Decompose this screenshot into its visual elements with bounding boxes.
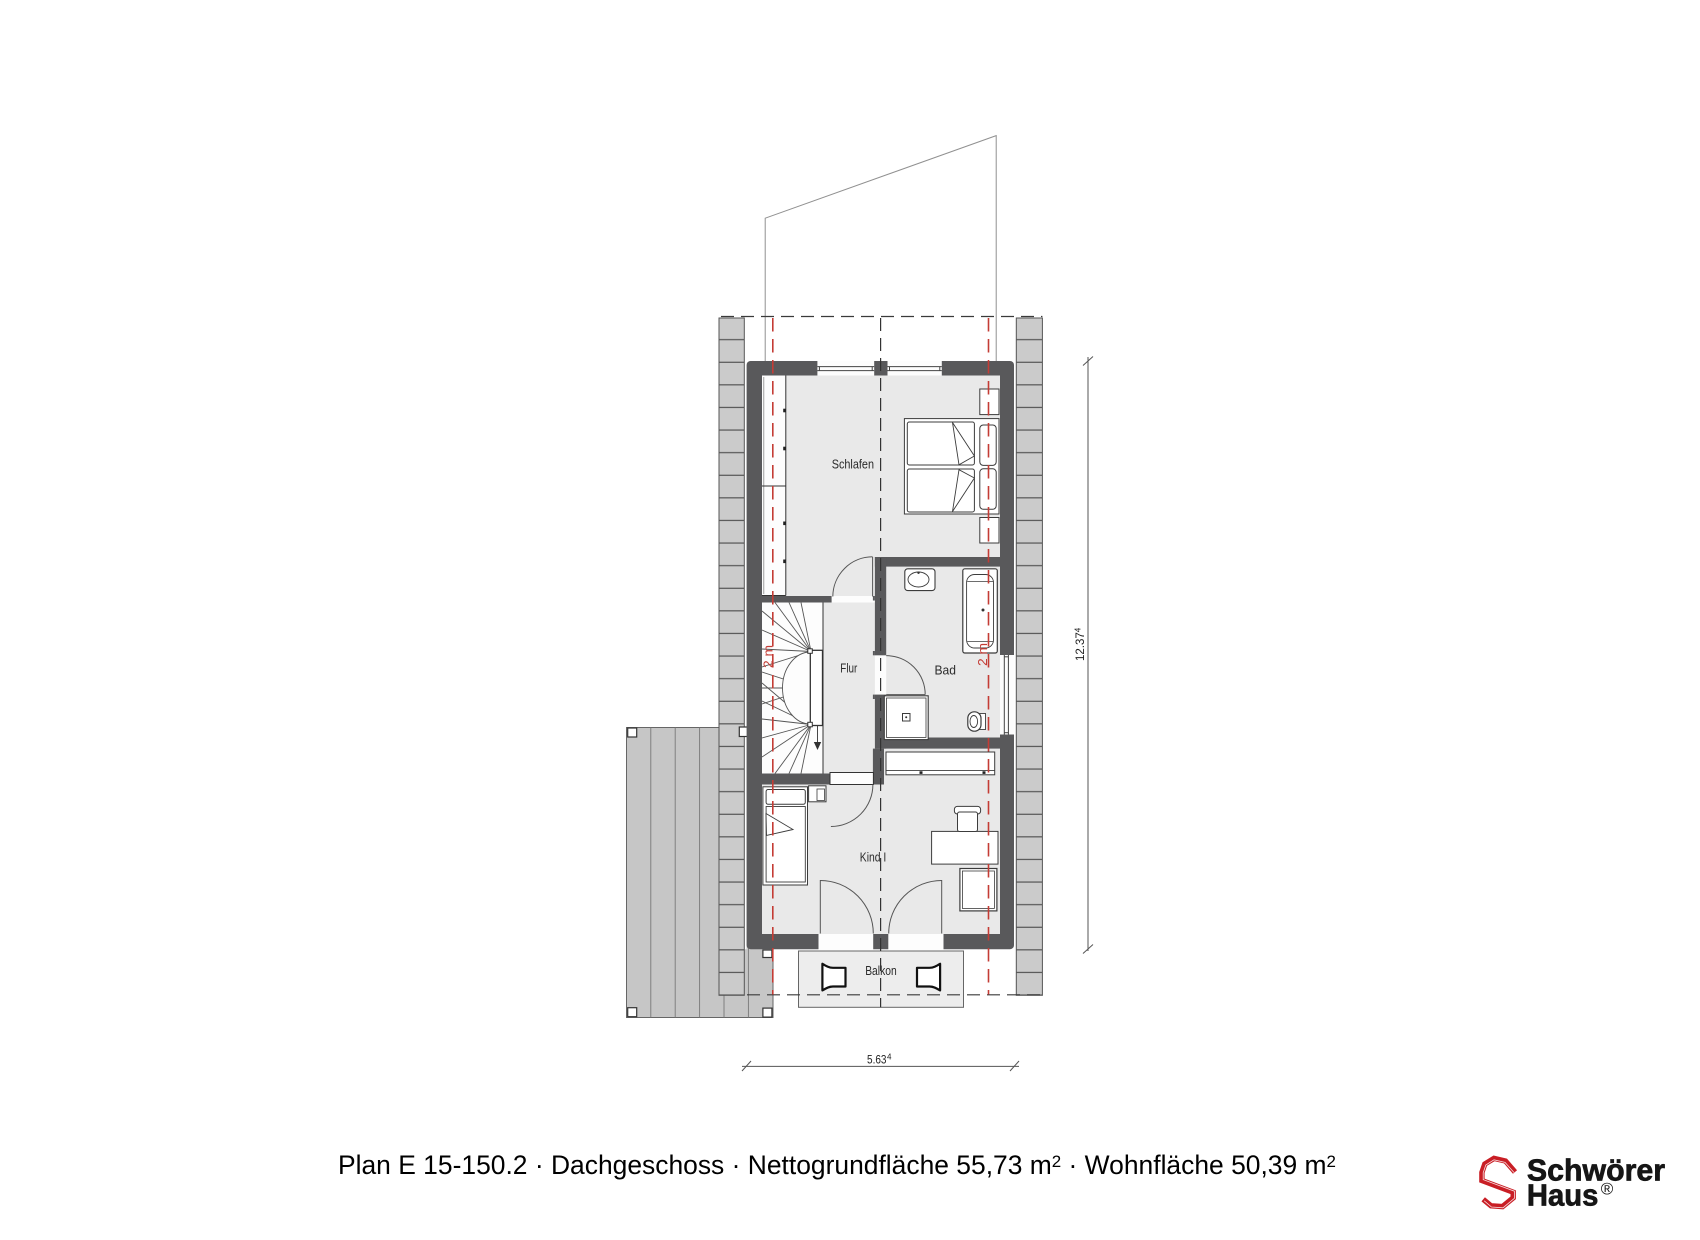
svg-text:Schlafen: Schlafen (832, 456, 874, 471)
svg-text:Balkon: Balkon (865, 963, 897, 978)
svg-text:12.374: 12.374 (1074, 627, 1088, 661)
svg-text:Flur: Flur (840, 661, 858, 676)
svg-text:®: ® (1601, 1180, 1614, 1199)
svg-text:Bad: Bad (935, 663, 957, 678)
svg-text:Haus: Haus (1527, 1179, 1599, 1213)
svg-text:Kind I: Kind I (860, 850, 887, 865)
svg-text:2 m: 2 m (976, 643, 990, 666)
svg-text:4: 4 (887, 1053, 892, 1062)
svg-text:2 m: 2 m (762, 645, 776, 668)
svg-text:Plan E 15-150.2 · Dachgeschoss: Plan E 15-150.2 · Dachgeschoss · Nettogr… (338, 1150, 1336, 1180)
svg-text:5.63: 5.63 (867, 1054, 887, 1066)
